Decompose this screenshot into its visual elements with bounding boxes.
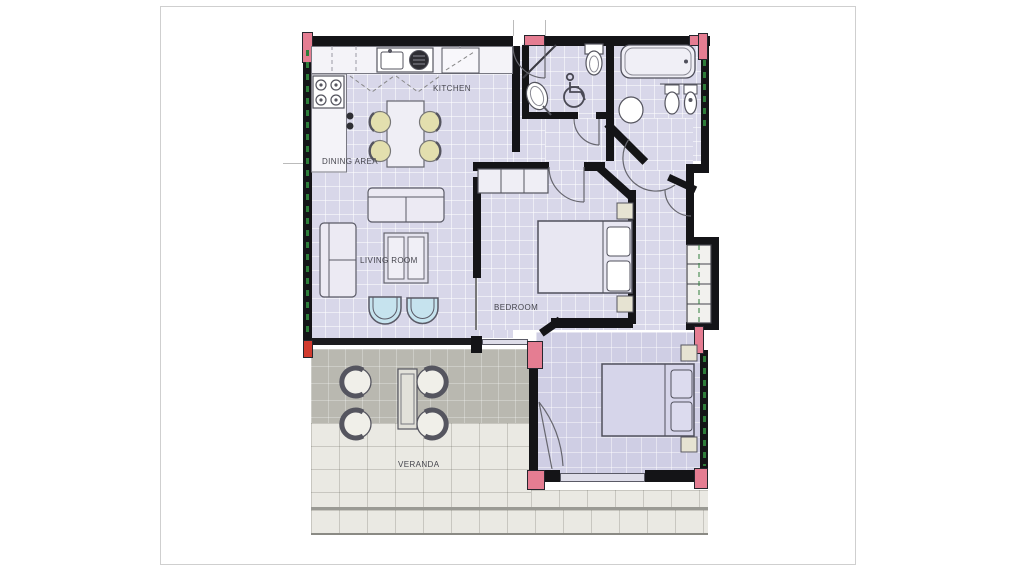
sofa — [368, 188, 444, 222]
room-label-bedroom-main: BEDROOM — [494, 303, 538, 312]
room-label-kitchen: KITCHEN — [433, 84, 471, 93]
wheelchair-icon — [564, 74, 585, 107]
kitchen-appliance — [442, 48, 479, 73]
closet — [687, 245, 711, 323]
room-label-living-room: LIVING ROOM — [360, 256, 418, 265]
room-label-veranda: VERANDA — [398, 460, 439, 469]
kitchen-sink — [377, 48, 433, 72]
bed-double — [538, 221, 632, 293]
toilet — [585, 44, 603, 75]
armchair — [369, 297, 401, 324]
bathtub — [621, 45, 695, 78]
washbasin-tap — [543, 106, 551, 115]
sofa — [320, 223, 356, 297]
veranda-table — [398, 369, 417, 429]
veranda-chair — [342, 368, 371, 396]
wardrobe — [478, 169, 548, 193]
floor-plan-canvas: KITCHEN DINING AREA LIVING ROOM BEDROOM … — [0, 0, 1024, 575]
armchair — [407, 298, 438, 324]
dining-table — [387, 101, 424, 167]
washbasin — [523, 79, 551, 112]
room-label-dining-area: DINING AREA — [322, 157, 378, 166]
bed-double — [602, 364, 694, 436]
veranda-chair — [417, 410, 446, 438]
bidet — [684, 85, 697, 114]
washbasin — [619, 97, 643, 123]
toilet — [665, 85, 679, 114]
veranda-chair — [342, 410, 371, 438]
veranda-chair — [417, 368, 446, 396]
